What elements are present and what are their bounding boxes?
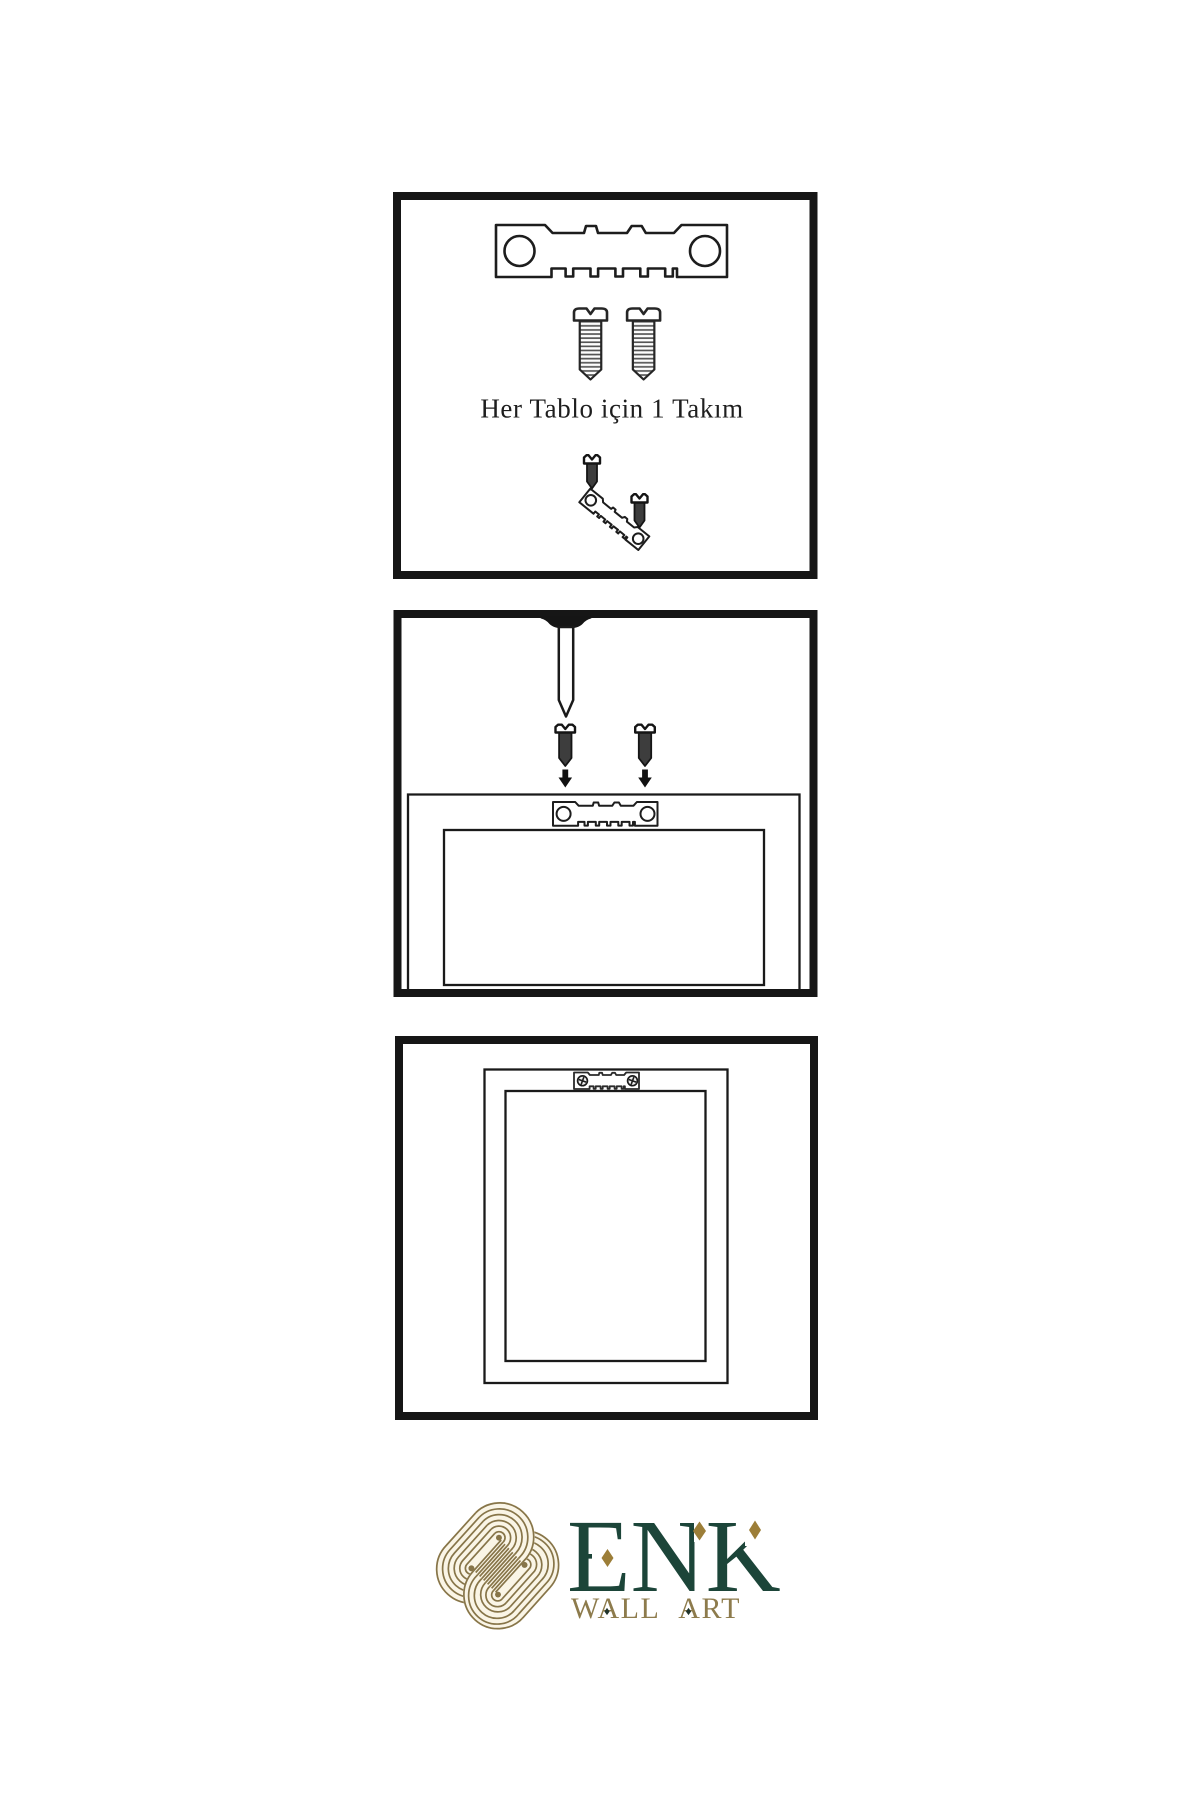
svg-text:Her Tablo için 1 Takım: Her Tablo için 1 Takım (480, 394, 743, 424)
svg-text:WALL ART: WALL ART (571, 1592, 741, 1625)
